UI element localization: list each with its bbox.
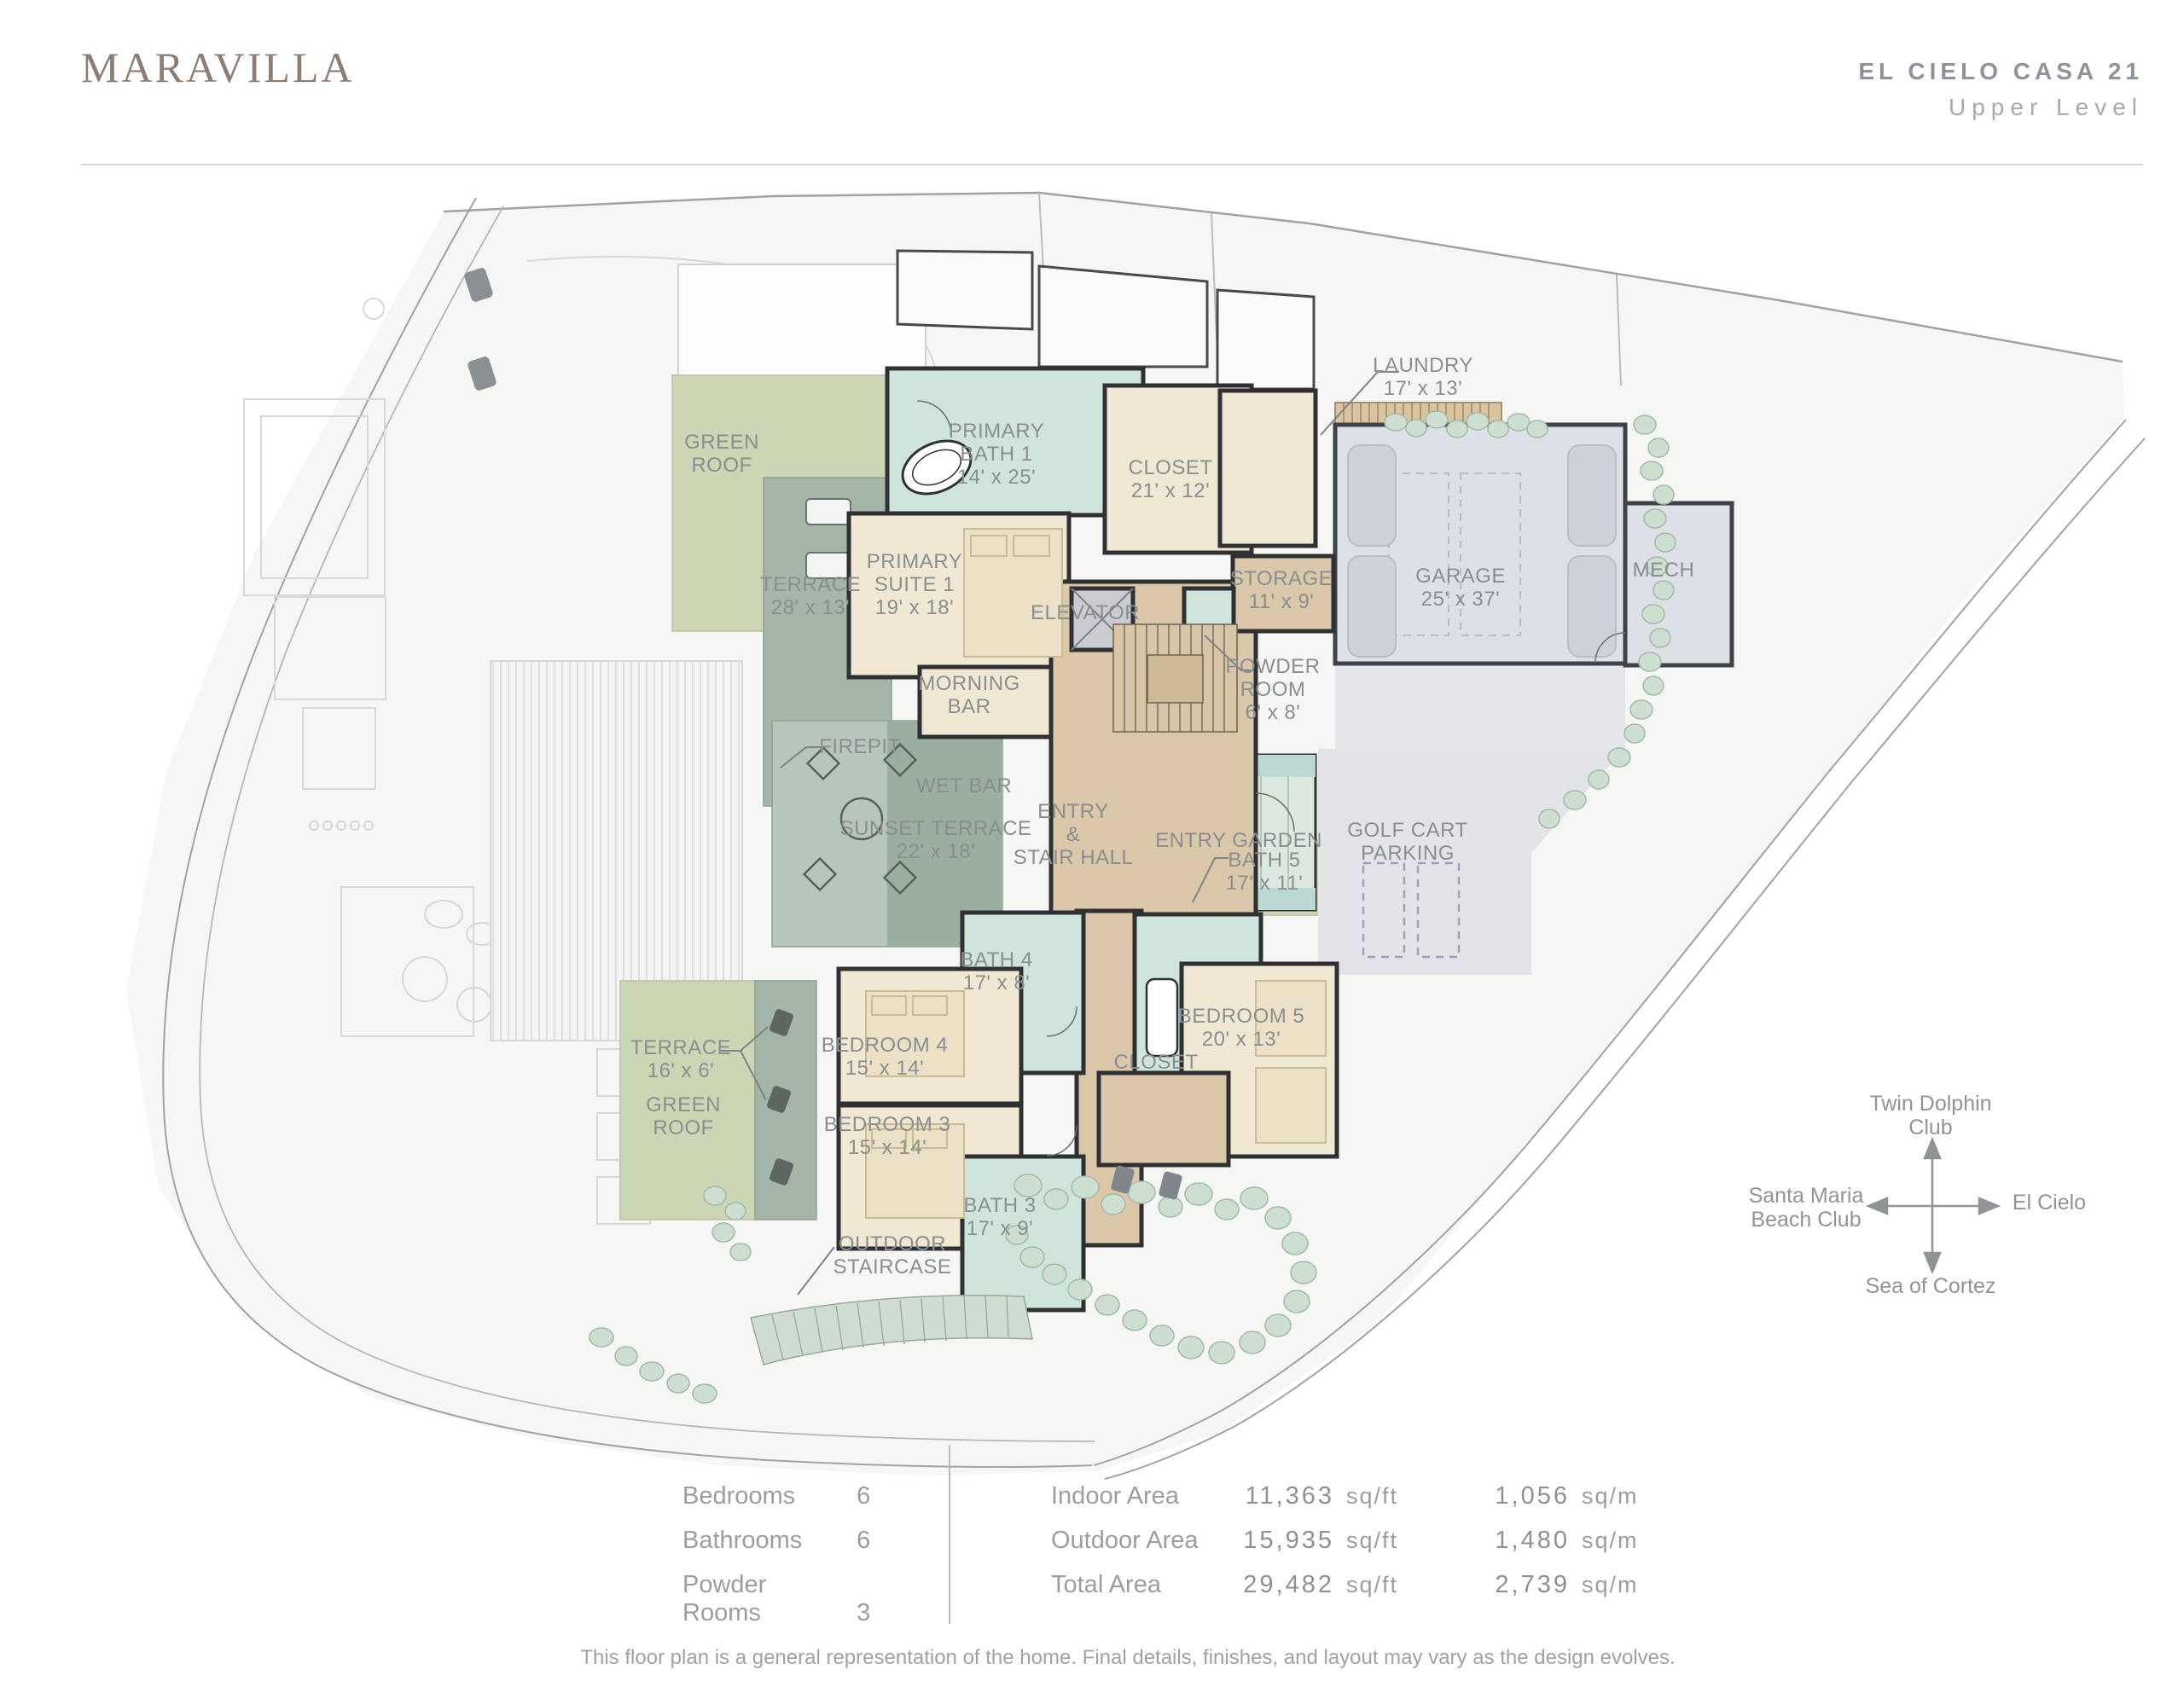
stats-divider [949,1445,950,1624]
stat-outdoor-area: Outdoor Area 15,935 sq/ft 1,480 sq/m [1051,1527,1639,1571]
stat-total-area: Total Area 29,482 sq/ft 2,739 sq/m [1051,1571,1639,1615]
area-stats: Indoor Area 11,363 sq/ft 1,056 sq/m Outd… [1051,1482,1639,1615]
compass-south-label: Sea of Cortez [1866,1274,1996,1298]
stat-powder-rooms: Powder Rooms 3 [682,1571,870,1615]
stat-bedrooms: Bedrooms 6 [682,1482,870,1527]
compass-east-label: El Cielo [2013,1191,2086,1215]
stat-bathrooms: Bathrooms 6 [682,1527,870,1571]
floor-plan-drawing [0,0,2184,1687]
room-counts: Bedrooms 6 Bathrooms 6 Powder Rooms 3 [682,1482,870,1615]
stat-indoor-area: Indoor Area 11,363 sq/ft 1,056 sq/m [1051,1482,1639,1527]
compass-west-label: Santa Maria Beach Club [1749,1184,1864,1232]
disclaimer-text: This floor plan is a general representat… [73,1646,2183,1670]
floorplan-page: MARAVILLA EL CIELO CASA 21 Upper Level [0,0,2184,1687]
compass-north-label: Twin Dolphin Club [1869,1092,1991,1139]
